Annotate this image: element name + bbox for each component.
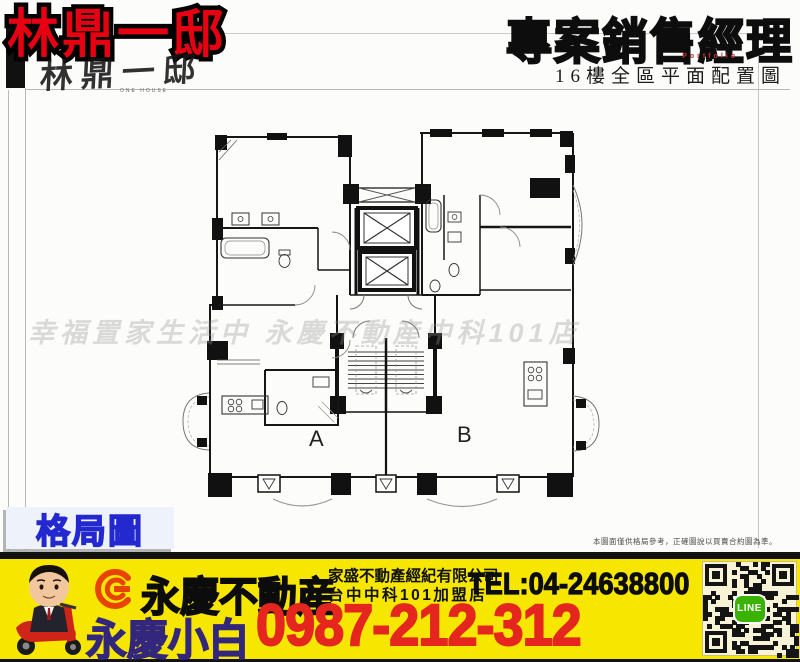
layout-badge-label: 格局圖: [36, 504, 144, 553]
flyer-page: 林鼎一邸 專案銷售經理 Portfolio 16樓全區平面配置圖 林鼎一邸 ON…: [0, 0, 800, 662]
unit-b-interior: [422, 185, 582, 406]
agent-photo: [10, 562, 88, 656]
sales-manager-subtitle: Portfolio: [682, 53, 738, 60]
unit-a-label: A: [309, 426, 324, 451]
qr-code: LINE: [702, 561, 797, 656]
paper-edge-line: [8, 90, 9, 550]
elevator-core: [356, 208, 418, 295]
line-icon: LINE: [733, 594, 767, 624]
layout-badge: 格局圖: [6, 507, 174, 549]
unit-a-interior: [217, 140, 350, 425]
mobile-phone: 0987-212-312: [256, 592, 581, 659]
qr-finder-icon: [772, 564, 794, 586]
contact-footer: 永慶不動産 家盛不動產經紀有限公司 台中中科101加盟店 TEL:04-2463…: [0, 552, 800, 662]
qr-finder-icon: [705, 631, 727, 653]
bay-windows: [183, 393, 599, 451]
plan-disclaimer: 本圖面僅供格局參考，正確圖說以買賣合約圖為準。: [593, 536, 777, 547]
balcony-and-windows: [258, 475, 519, 507]
qr-finder-icon: [705, 564, 727, 586]
plan-caption: 16樓全區平面配置圖: [555, 61, 786, 88]
watermark-text: 幸福置家生活中 永慶不動産中科101店: [28, 311, 772, 350]
paper-edge-line: [25, 88, 26, 550]
agent-name: 永慶小白: [86, 606, 249, 662]
brand-logo-subtext: ONE HOUSE: [120, 88, 168, 94]
unit-b-label: B: [457, 422, 472, 447]
